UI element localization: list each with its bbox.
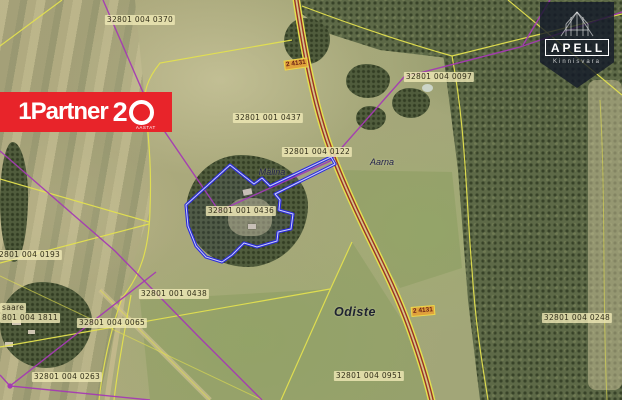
network-node [7, 383, 12, 388]
parcel-label: 801 004 1811 [0, 313, 60, 323]
road [296, 0, 432, 400]
cadastral-line [0, 0, 62, 46]
cadastral-line [452, 56, 488, 400]
road-number-label: 2 4131 [411, 305, 436, 317]
cadastral-line [600, 100, 607, 400]
parcel-label: 32801 004 0122 [282, 147, 352, 157]
parcel-label: 32801 004 0370 [105, 15, 175, 25]
parcel-label: saare [0, 303, 26, 313]
cadastral-map: 1Partner 2 AASTAT APELL Kinnisvara 32801… [0, 0, 622, 400]
parcel-label: 32801 004 0248 [542, 313, 612, 323]
map-lines-layer [0, 0, 622, 400]
partner-2-digit: 2 [113, 99, 128, 126]
parcel-label: 32801 004 0065 [77, 318, 147, 328]
partner-logo-text: 1Partner [18, 100, 107, 124]
parcel-label: 32801 004 0097 [404, 72, 474, 82]
parcel-label: 32801 001 0436 [206, 206, 276, 216]
place-label: Mälina [259, 167, 286, 177]
place-label: Odiste [334, 305, 376, 319]
apell-logo-subtitle: Kinnisvara [553, 59, 601, 65]
parcel-label: 32801 001 0437 [233, 113, 303, 123]
partner-logo: 1Partner 2 AASTAT [0, 92, 172, 132]
house-wireframe-icon [556, 6, 598, 38]
apell-logo-text: APELL [545, 39, 609, 56]
parcel-label: 32801 004 0263 [32, 372, 102, 382]
parcel-label: 32801 004 0951 [334, 371, 404, 381]
parcel-label: 32801 001 0438 [139, 289, 209, 299]
cadastral-line [302, 6, 452, 56]
parcel-label: 32801 004 0193 [0, 250, 62, 260]
place-label: Aarna [370, 157, 394, 167]
partner-20-badge: 2 AASTAT [113, 99, 154, 126]
partner-zero-ring-icon [129, 100, 154, 125]
partner-years-text: AASTAT [136, 125, 156, 130]
